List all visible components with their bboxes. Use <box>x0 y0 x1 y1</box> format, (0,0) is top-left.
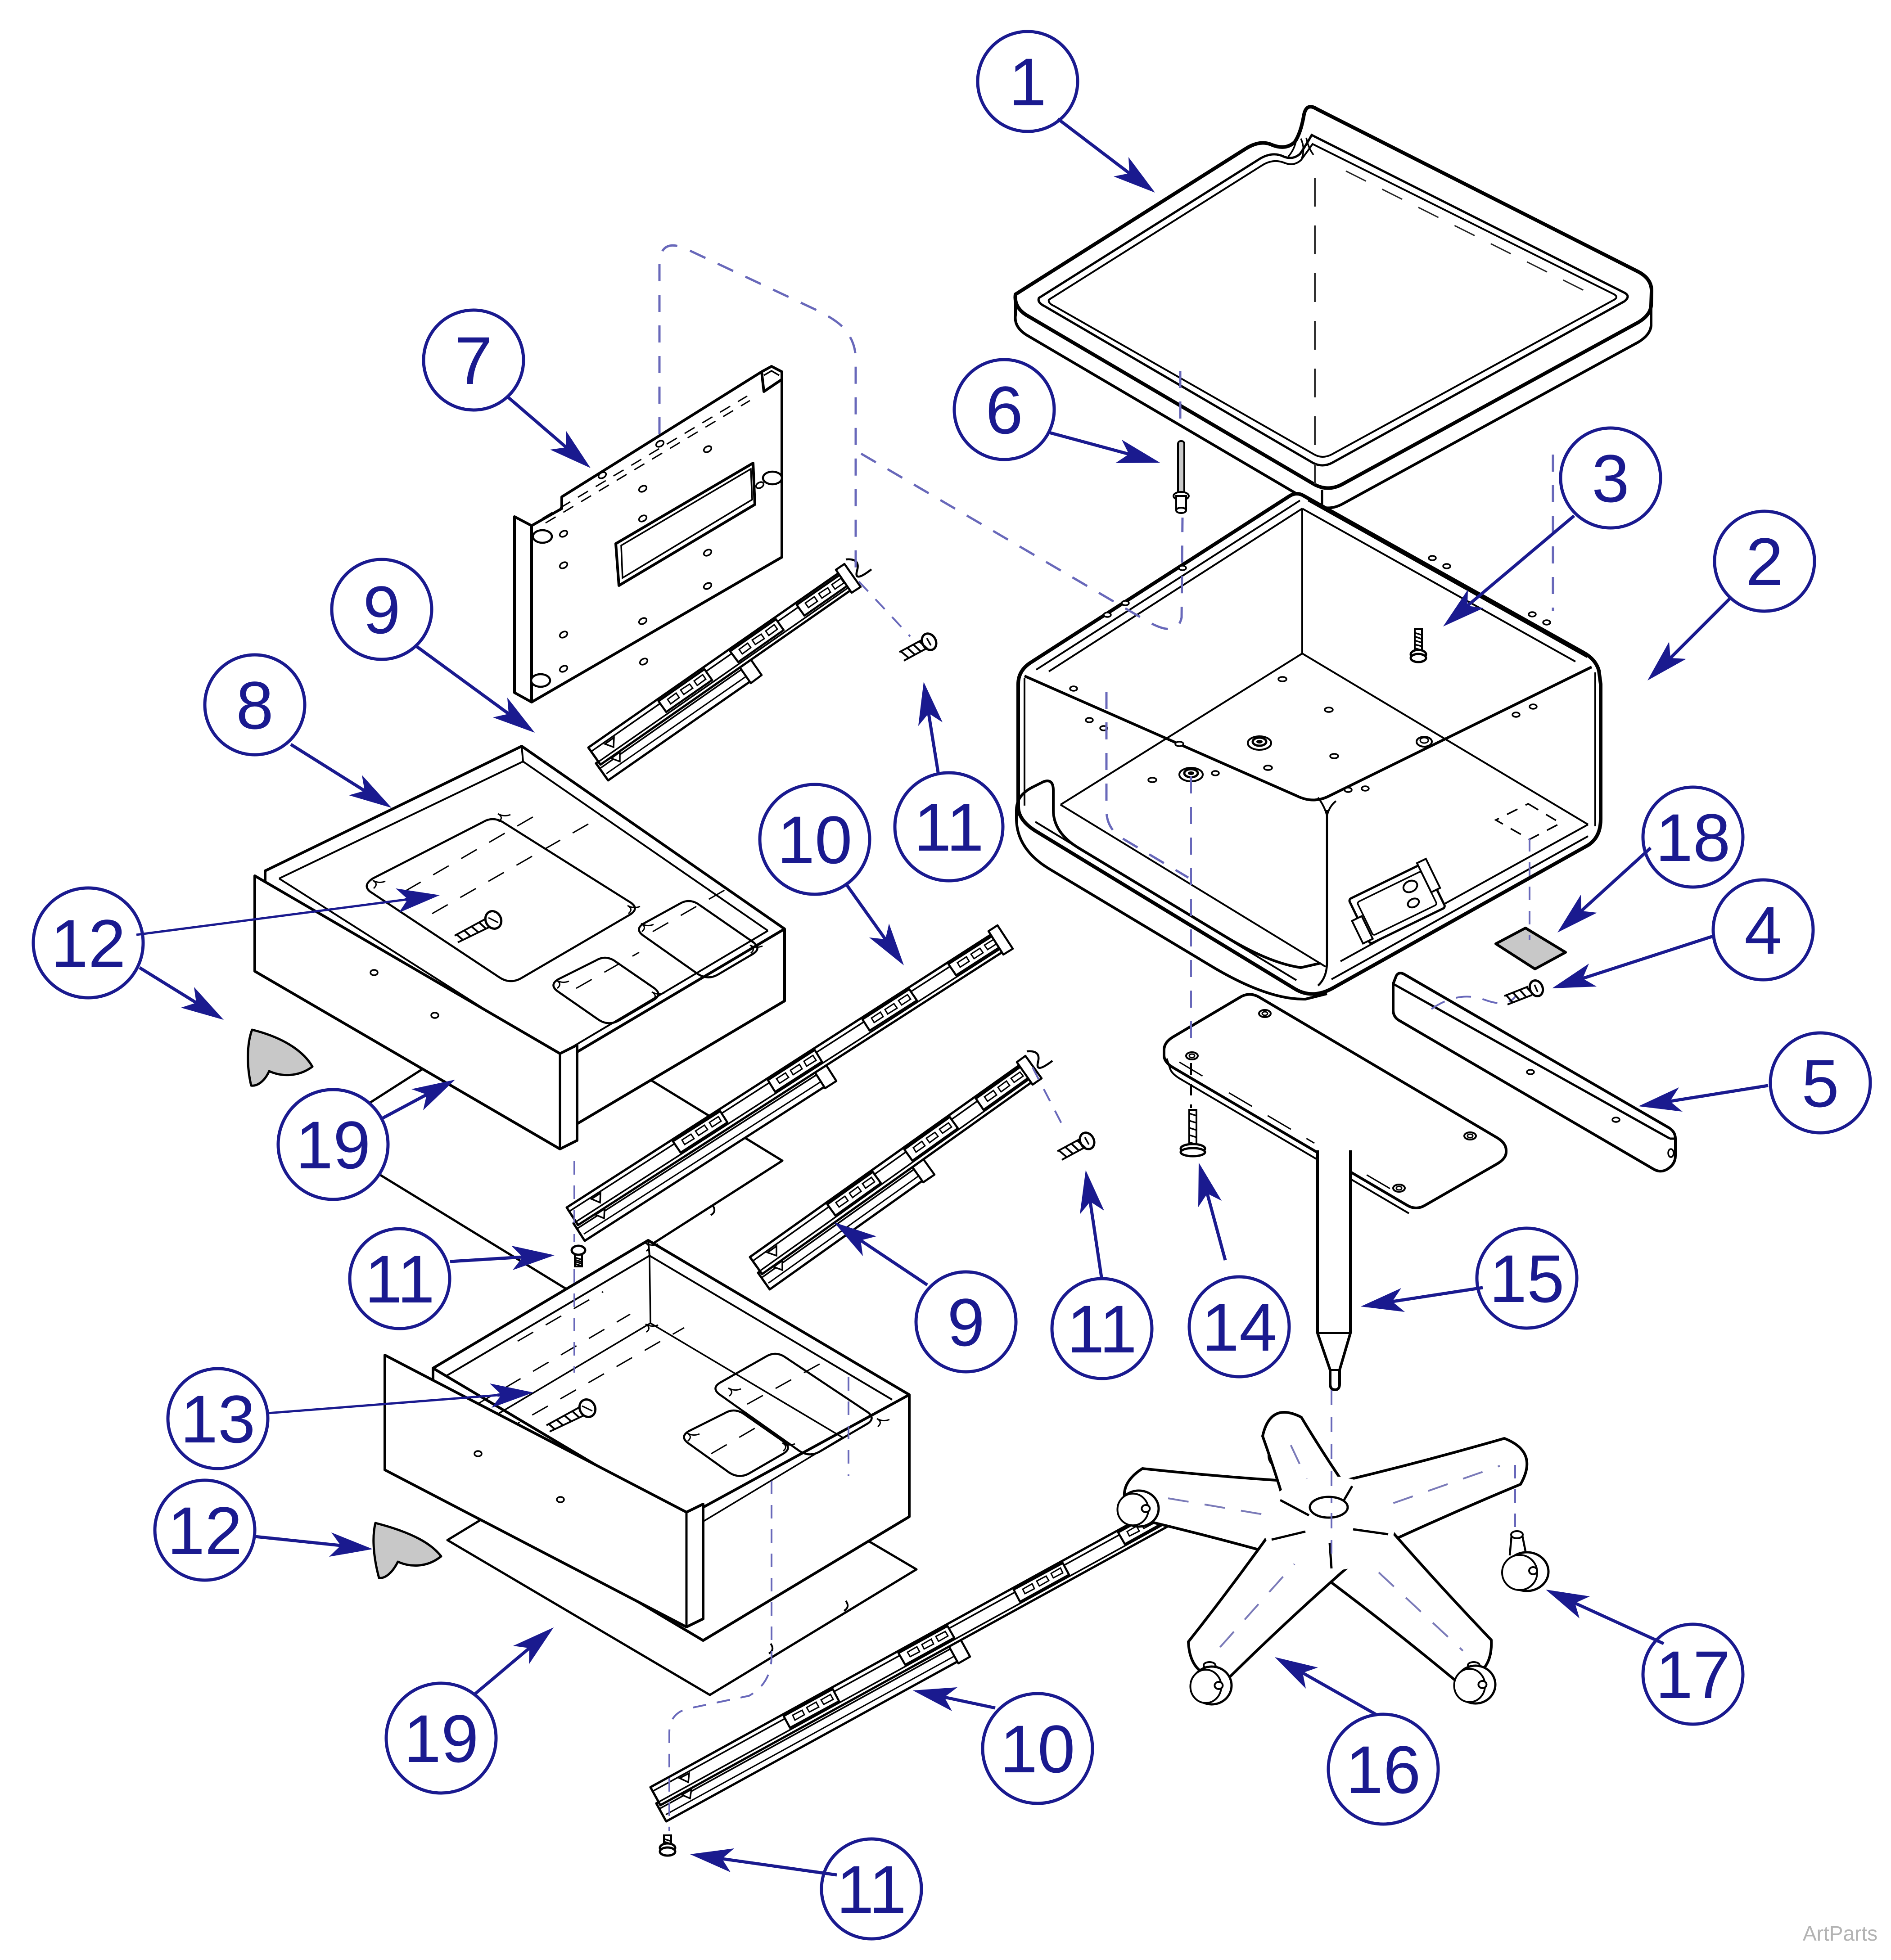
svg-text:2: 2 <box>1746 524 1783 599</box>
svg-text:6: 6 <box>985 372 1023 448</box>
svg-text:11: 11 <box>365 1241 435 1317</box>
svg-text:13: 13 <box>181 1381 256 1457</box>
svg-text:9: 9 <box>363 572 400 648</box>
svg-text:19: 19 <box>404 1701 479 1776</box>
svg-text:7: 7 <box>455 323 492 398</box>
svg-text:3: 3 <box>1592 441 1629 516</box>
svg-text:16: 16 <box>1346 1732 1421 1807</box>
svg-text:11: 11 <box>914 789 984 865</box>
svg-text:17: 17 <box>1656 1637 1731 1712</box>
svg-text:12: 12 <box>167 1493 243 1568</box>
svg-text:8: 8 <box>236 667 273 743</box>
svg-text:18: 18 <box>1656 800 1731 875</box>
svg-text:4: 4 <box>1744 892 1782 968</box>
svg-text:10: 10 <box>1000 1711 1075 1787</box>
svg-text:12: 12 <box>51 906 126 981</box>
svg-text:ArtParts: ArtParts <box>1803 1922 1877 1945</box>
svg-text:11: 11 <box>1067 1291 1137 1367</box>
svg-text:15: 15 <box>1489 1241 1565 1316</box>
svg-text:11: 11 <box>836 1852 907 1927</box>
svg-text:1: 1 <box>1009 44 1046 120</box>
svg-text:9: 9 <box>947 1284 984 1360</box>
svg-text:5: 5 <box>1801 1045 1839 1121</box>
svg-text:14: 14 <box>1202 1289 1277 1365</box>
svg-text:19: 19 <box>296 1107 371 1183</box>
svg-text:10: 10 <box>777 802 853 878</box>
